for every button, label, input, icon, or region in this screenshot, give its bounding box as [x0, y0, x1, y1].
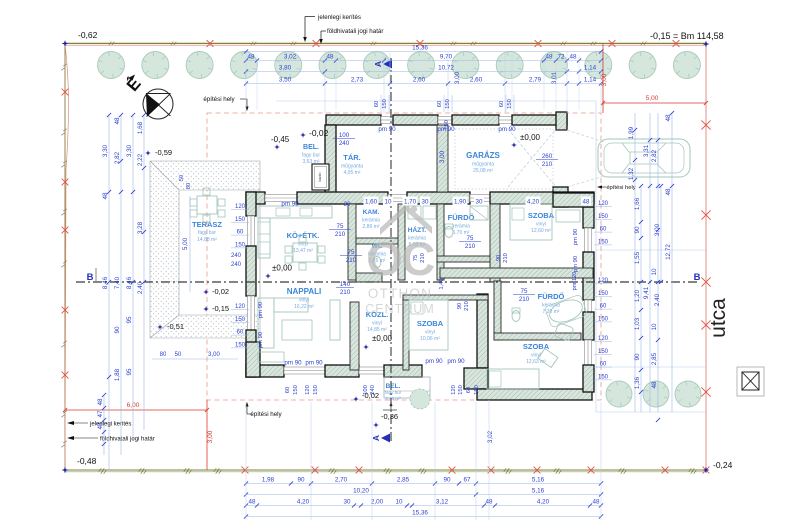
svg-text:pm 120: pm 120 — [572, 272, 578, 291]
svg-text:67: 67 — [463, 476, 471, 483]
svg-text:földhivatali jogi határ: földhivatali jogi határ — [100, 437, 155, 443]
svg-text:120: 120 — [598, 201, 609, 207]
svg-text:-0,15: -0,15 — [212, 304, 229, 313]
svg-text:műgyanta: műgyanta — [341, 164, 363, 170]
svg-text:B: B — [694, 272, 701, 283]
svg-text:1,90: 1,90 — [454, 199, 467, 206]
svg-text:fagy bur: fagy bur — [385, 390, 402, 395]
svg-text:1,98: 1,98 — [262, 476, 275, 483]
svg-text:60: 60 — [499, 101, 505, 107]
svg-text:48: 48 — [545, 53, 553, 60]
svg-text:B: B — [87, 272, 94, 283]
svg-text:12,72: 12,72 — [665, 244, 672, 260]
svg-text:1,03: 1,03 — [634, 317, 641, 330]
svg-text:pm 90: pm 90 — [498, 126, 516, 133]
svg-text:3,80: 3,80 — [279, 64, 292, 71]
svg-text:90: 90 — [634, 353, 641, 361]
svg-text:14,85 m²: 14,85 m² — [367, 327, 387, 333]
svg-text:14,88 m²: 14,88 m² — [197, 237, 217, 243]
svg-text:4,20: 4,20 — [297, 498, 310, 505]
svg-text:3,30: 3,30 — [102, 144, 109, 157]
svg-text:1,60: 1,60 — [365, 199, 378, 206]
svg-text:utca: utca — [707, 298, 730, 338]
svg-text:pm 90: pm 90 — [281, 201, 299, 208]
svg-text:OTTHON: OTTHON — [368, 286, 432, 301]
svg-text:pm 90: pm 90 — [447, 358, 465, 365]
svg-text:120: 120 — [451, 385, 457, 395]
svg-text:50: 50 — [179, 175, 185, 181]
svg-text:3,01: 3,01 — [551, 71, 558, 84]
svg-text:12,60 m²: 12,60 m² — [531, 228, 551, 234]
svg-text:10: 10 — [651, 268, 658, 276]
svg-text:-0,15 = Bm 114,58: -0,15 = Bm 114,58 — [650, 31, 724, 41]
svg-text:-0,59: -0,59 — [155, 148, 172, 157]
svg-text:150: 150 — [458, 385, 464, 395]
svg-text:vinyl: vinyl — [536, 222, 546, 228]
svg-text:kerámia: kerámia — [362, 218, 380, 224]
svg-text:150: 150 — [444, 120, 450, 130]
svg-text:5,00: 5,00 — [182, 237, 189, 250]
svg-text:3,00: 3,00 — [207, 430, 214, 443]
svg-text:10,20: 10,20 — [353, 487, 369, 494]
svg-text:210: 210 — [464, 301, 470, 311]
svg-text:-0,62: -0,62 — [78, 30, 98, 40]
svg-text:2,60: 2,60 — [470, 76, 483, 83]
svg-text:150: 150 — [313, 385, 319, 395]
svg-text:fagy bur: fagy bur — [198, 230, 216, 236]
svg-text:pm 90: pm 90 — [258, 302, 264, 318]
svg-text:60: 60 — [600, 304, 607, 310]
svg-text:60: 60 — [374, 101, 380, 107]
svg-text:FÜRDŐ: FÜRDŐ — [538, 292, 565, 301]
svg-text:1,55: 1,55 — [634, 251, 641, 264]
svg-text:±0,00: ±0,00 — [372, 334, 393, 343]
svg-text:48: 48 — [248, 498, 256, 505]
svg-text:±0,00: ±0,00 — [272, 264, 293, 273]
svg-text:-0,36: -0,36 — [381, 412, 398, 421]
svg-text:150: 150 — [598, 349, 609, 355]
svg-text:2,40: 2,40 — [137, 281, 144, 294]
svg-text:3,00: 3,00 — [654, 223, 661, 236]
svg-text:150: 150 — [235, 317, 246, 323]
svg-text:210: 210 — [340, 289, 351, 296]
svg-text:30: 30 — [344, 201, 351, 208]
svg-text:BEL.: BEL. — [303, 144, 319, 151]
svg-text:TÁR.: TÁR. — [343, 153, 361, 162]
svg-text:5,16: 5,16 — [532, 476, 545, 483]
svg-text:2,70: 2,70 — [335, 476, 348, 483]
svg-text:48: 48 — [665, 188, 672, 196]
svg-text:210: 210 — [465, 243, 476, 250]
svg-text:210: 210 — [420, 253, 426, 263]
svg-text:210: 210 — [503, 253, 509, 263]
svg-text:75: 75 — [348, 249, 355, 256]
svg-text:90: 90 — [496, 255, 502, 261]
svg-text:pm 90: pm 90 — [573, 256, 579, 272]
svg-text:75: 75 — [467, 235, 474, 242]
svg-text:pm 90: pm 90 — [378, 126, 396, 133]
svg-text:2,85: 2,85 — [651, 352, 658, 365]
svg-text:10: 10 — [395, 498, 403, 505]
svg-text:8,46: 8,46 — [102, 276, 109, 289]
svg-text:kazán: kazán — [318, 172, 322, 181]
svg-text:13,47 m²: 13,47 m² — [293, 248, 313, 254]
svg-text:25,08 m²: 25,08 m² — [473, 168, 493, 174]
svg-text:9,41: 9,41 — [643, 286, 650, 299]
svg-text:1,70: 1,70 — [404, 199, 417, 206]
svg-text:150: 150 — [235, 242, 246, 248]
svg-text:építési hely: építési hely — [606, 185, 635, 191]
svg-text:48: 48 — [583, 199, 590, 206]
svg-text:SZOBA: SZOBA — [528, 211, 555, 220]
svg-text:150: 150 — [293, 385, 299, 395]
svg-text:9,70: 9,70 — [440, 53, 453, 60]
svg-text:60: 60 — [285, 387, 291, 393]
svg-text:2,40: 2,40 — [654, 293, 661, 306]
svg-text:3,00: 3,00 — [439, 150, 446, 163]
svg-text:260: 260 — [542, 153, 553, 160]
svg-text:építési hely: építési hely — [203, 96, 235, 103]
svg-text:3,02: 3,02 — [284, 53, 297, 60]
svg-text:140: 140 — [340, 281, 351, 288]
svg-text:3,00: 3,00 — [454, 71, 461, 84]
svg-text:150: 150 — [598, 239, 609, 245]
svg-text:2,22: 2,22 — [137, 153, 144, 166]
svg-text:BEL.: BEL. — [386, 383, 401, 390]
svg-text:150: 150 — [507, 99, 513, 109]
svg-text:építési hely: építési hely — [250, 411, 282, 418]
svg-text:120: 120 — [235, 304, 246, 310]
svg-text:2,86 m²: 2,86 m² — [363, 224, 380, 230]
svg-text:FÜRDŐ: FÜRDŐ — [448, 213, 475, 222]
svg-text:80: 80 — [160, 352, 167, 358]
svg-text:2,79: 2,79 — [529, 76, 542, 83]
svg-text:±0,00: ±0,00 — [520, 133, 541, 142]
svg-text:2,82: 2,82 — [114, 151, 121, 164]
svg-text:80: 80 — [186, 183, 192, 189]
svg-text:75: 75 — [337, 223, 344, 230]
svg-text:jelenlegi kerités: jelenlegi kerités — [89, 422, 131, 428]
svg-text:1,99: 1,99 — [628, 126, 635, 139]
svg-text:120: 120 — [598, 278, 609, 284]
svg-text:16,22 m²: 16,22 m² — [294, 304, 314, 310]
svg-text:2,00: 2,00 — [371, 498, 384, 505]
svg-text:1,14: 1,14 — [584, 64, 597, 71]
svg-text:10,72: 10,72 — [438, 64, 454, 71]
svg-text:8,46: 8,46 — [126, 276, 133, 289]
svg-text:TERASZ: TERASZ — [192, 220, 222, 229]
svg-text:pm 90: pm 90 — [305, 360, 323, 367]
svg-text:150: 150 — [598, 214, 609, 220]
svg-text:30: 30 — [422, 199, 429, 206]
svg-text:műgyanta: műgyanta — [472, 162, 494, 168]
svg-text:120: 120 — [235, 204, 246, 210]
svg-text:CENTRUM: CENTRUM — [365, 302, 435, 316]
svg-text:150: 150 — [235, 342, 246, 348]
svg-text:30: 30 — [343, 498, 351, 505]
svg-text:10,06 m²: 10,06 m² — [420, 336, 440, 342]
svg-text:2,85: 2,85 — [397, 476, 410, 483]
svg-text:48: 48 — [97, 422, 104, 430]
svg-text:100: 100 — [363, 385, 369, 395]
svg-text:15,36: 15,36 — [412, 509, 428, 516]
svg-text:210: 210 — [519, 296, 530, 303]
svg-text:60: 60 — [237, 330, 244, 336]
svg-text:SZOBA: SZOBA — [417, 319, 444, 328]
svg-text:3,00: 3,00 — [208, 352, 220, 358]
svg-text:150: 150 — [598, 374, 609, 380]
svg-text:KÖ+ÉTK.: KÖ+ÉTK. — [287, 231, 320, 240]
svg-text:90: 90 — [297, 476, 305, 483]
svg-text:GARÁZS: GARÁZS — [466, 151, 500, 160]
svg-text:SZOBA: SZOBA — [523, 342, 550, 351]
svg-text:120: 120 — [305, 385, 311, 395]
svg-text:90: 90 — [457, 303, 463, 309]
svg-text:90: 90 — [634, 226, 641, 234]
svg-text:72: 72 — [557, 53, 565, 60]
svg-text:3,63 m²: 3,63 m² — [303, 159, 320, 165]
svg-text:60: 60 — [600, 362, 607, 368]
svg-text:pm 90: pm 90 — [284, 360, 302, 367]
svg-text:-0,02: -0,02 — [309, 128, 329, 138]
svg-text:90: 90 — [443, 476, 451, 483]
svg-text:-0,48: -0,48 — [77, 456, 97, 466]
svg-text:150: 150 — [474, 385, 480, 395]
svg-text:48: 48 — [569, 53, 577, 60]
svg-text:5,00: 5,00 — [646, 95, 659, 102]
svg-text:pm 90: pm 90 — [425, 358, 443, 365]
svg-text:3,31: 3,31 — [643, 144, 650, 157]
svg-text:240: 240 — [231, 253, 242, 259]
svg-text:vinyl: vinyl — [372, 321, 382, 327]
svg-text:120: 120 — [598, 336, 609, 342]
svg-text:1,36: 1,36 — [634, 376, 641, 389]
svg-text:2,40 m²: 2,40 m² — [385, 396, 401, 401]
svg-text:-0,24: -0,24 — [713, 460, 733, 470]
svg-text:150: 150 — [598, 316, 609, 322]
svg-text:1,40: 1,40 — [439, 278, 445, 289]
svg-text:-0,51: -0,51 — [167, 322, 184, 331]
svg-text:3,12: 3,12 — [436, 498, 449, 505]
svg-text:3,02: 3,02 — [487, 430, 494, 443]
svg-text:150: 150 — [445, 99, 451, 109]
svg-text:210: 210 — [346, 257, 357, 264]
svg-text:10: 10 — [385, 199, 392, 206]
svg-text:240: 240 — [370, 385, 376, 395]
svg-text:1,20: 1,20 — [634, 289, 641, 302]
svg-text:2,73: 2,73 — [351, 76, 364, 83]
svg-text:A: A — [373, 61, 383, 67]
svg-text:-0,02: -0,02 — [212, 287, 229, 296]
svg-text:60: 60 — [600, 227, 607, 233]
svg-text:150: 150 — [382, 99, 388, 109]
svg-text:földhivatali jogi határ: földhivatali jogi határ — [327, 28, 383, 35]
svg-text:48: 48 — [114, 117, 121, 125]
svg-text:90: 90 — [114, 326, 121, 334]
svg-text:75: 75 — [413, 255, 419, 261]
svg-text:A: A — [371, 435, 381, 441]
svg-text:240: 240 — [231, 262, 242, 268]
svg-text:3,50: 3,50 — [279, 76, 292, 83]
svg-text:210: 210 — [542, 161, 553, 168]
svg-text:48: 48 — [326, 53, 334, 60]
svg-text:15,36: 15,36 — [412, 44, 428, 51]
svg-text:3,30: 3,30 — [126, 144, 133, 157]
svg-text:4,20: 4,20 — [527, 199, 540, 206]
svg-text:jelenlegi kerítés: jelenlegi kerítés — [317, 14, 361, 21]
svg-text:1,32: 1,32 — [628, 167, 635, 180]
svg-text:1,88: 1,88 — [114, 368, 121, 381]
svg-text:7,40: 7,40 — [114, 276, 121, 289]
svg-text:48: 48 — [97, 398, 104, 406]
svg-text:30: 30 — [476, 199, 483, 206]
svg-text:3,28: 3,28 — [137, 221, 144, 234]
svg-text:47: 47 — [97, 410, 104, 418]
svg-text:95: 95 — [126, 368, 133, 376]
svg-text:48: 48 — [592, 498, 600, 505]
svg-text:10: 10 — [651, 323, 658, 331]
svg-text:150: 150 — [598, 291, 609, 297]
svg-text:60: 60 — [237, 230, 244, 236]
svg-text:2,82: 2,82 — [651, 149, 658, 162]
svg-text:pm 90: pm 90 — [573, 229, 579, 245]
svg-text:60: 60 — [437, 101, 443, 107]
svg-text:210: 210 — [335, 231, 346, 238]
svg-text:1,68: 1,68 — [137, 121, 144, 134]
svg-text:48: 48 — [665, 114, 672, 122]
svg-text:150: 150 — [235, 217, 246, 223]
svg-text:5,16: 5,16 — [532, 487, 545, 494]
svg-text:75: 75 — [521, 288, 528, 295]
svg-text:4,20: 4,20 — [537, 498, 550, 505]
svg-text:3,00: 3,00 — [601, 73, 608, 86]
svg-text:KAM.: KAM. — [363, 209, 380, 216]
svg-text:48: 48 — [102, 192, 109, 200]
svg-text:1,14: 1,14 — [584, 76, 597, 83]
svg-text:60: 60 — [466, 387, 472, 393]
svg-text:48: 48 — [651, 381, 658, 389]
svg-text:kerámia: kerámia — [452, 224, 470, 230]
svg-text:vinyl: vinyl — [425, 330, 435, 336]
svg-text:100: 100 — [339, 132, 350, 139]
svg-text:2,60: 2,60 — [413, 76, 426, 83]
svg-text:240: 240 — [339, 140, 350, 147]
svg-text:fagy bur: fagy bur — [302, 153, 320, 159]
svg-text:4,05 m²: 4,05 m² — [344, 170, 361, 176]
svg-text:pm 90: pm 90 — [258, 332, 264, 348]
svg-text:1,66: 1,66 — [634, 197, 641, 210]
svg-text:95: 95 — [126, 316, 133, 324]
svg-text:NAPPALI: NAPPALI — [287, 287, 322, 296]
svg-text:kerámia: kerámia — [542, 303, 560, 309]
svg-text:-0,45: -0,45 — [271, 135, 290, 144]
svg-text:50: 50 — [175, 352, 182, 358]
svg-text:48: 48 — [247, 53, 255, 60]
